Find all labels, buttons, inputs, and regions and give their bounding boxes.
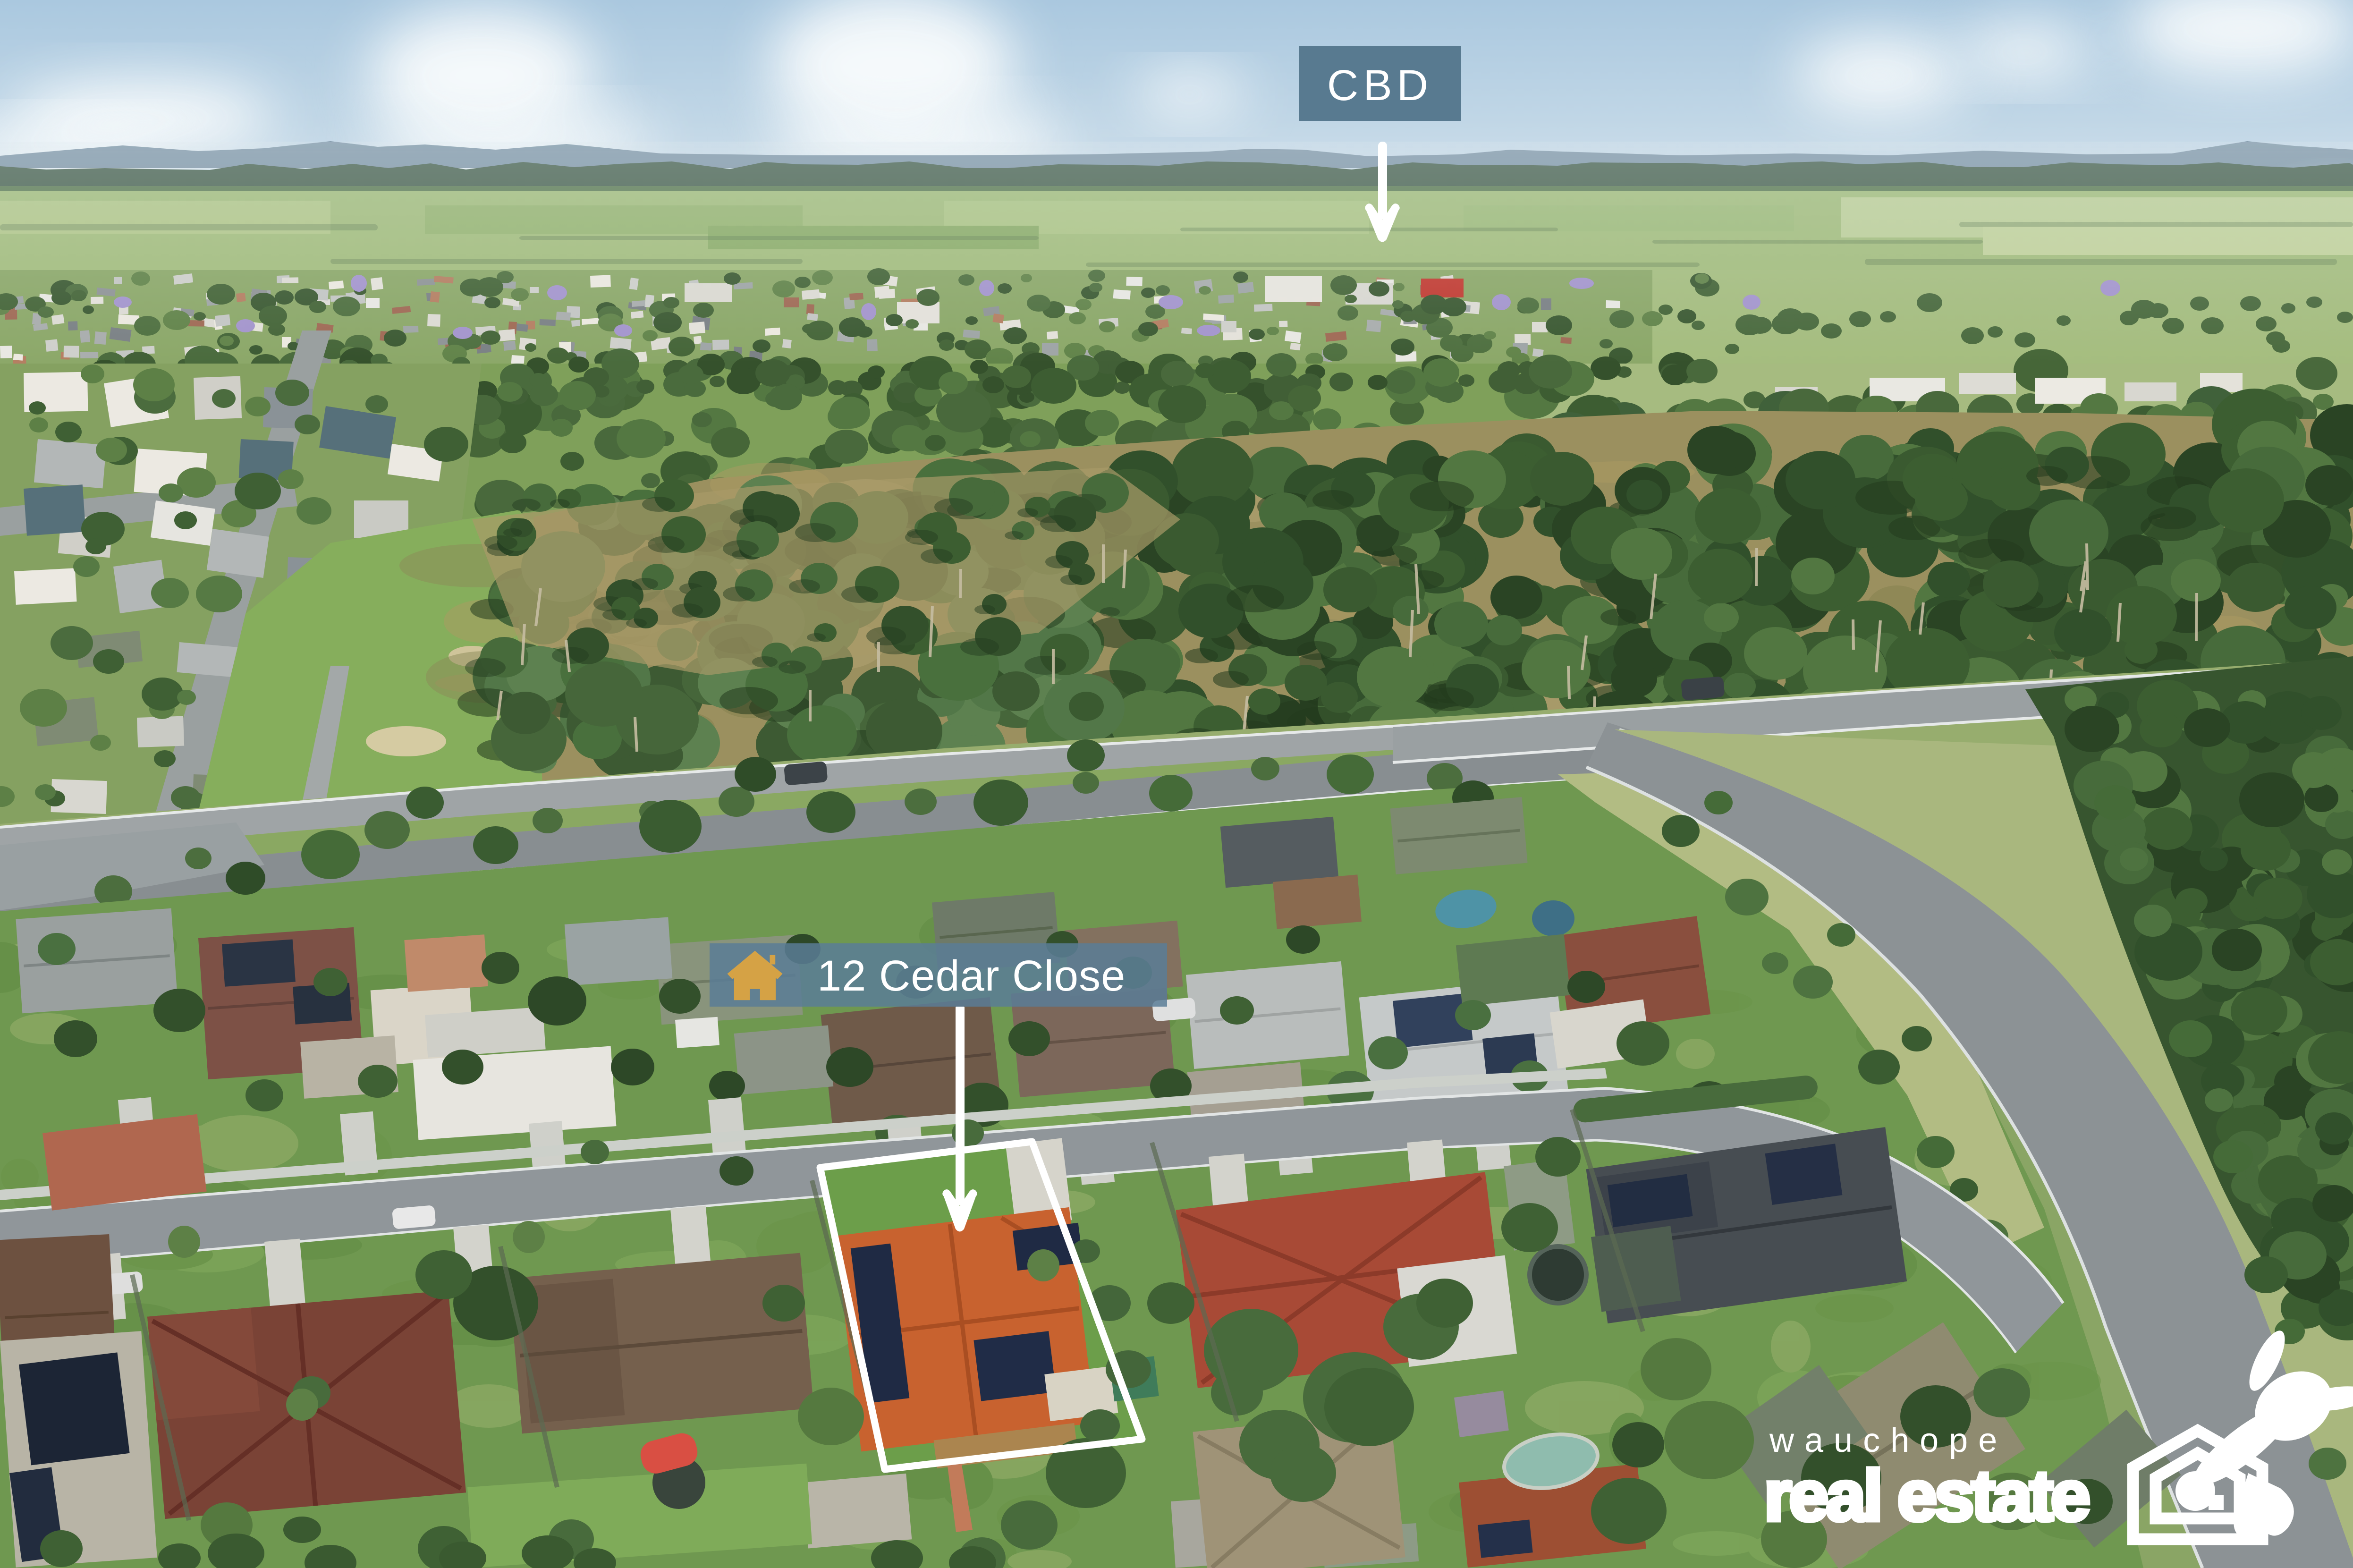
svg-text:CBD: CBD xyxy=(1327,61,1433,110)
svg-text:12 Cedar Close: 12 Cedar Close xyxy=(817,952,1126,1000)
svg-text:wauchope: wauchope xyxy=(1769,1422,2007,1459)
svg-text:real estate: real estate xyxy=(1764,1456,2089,1536)
